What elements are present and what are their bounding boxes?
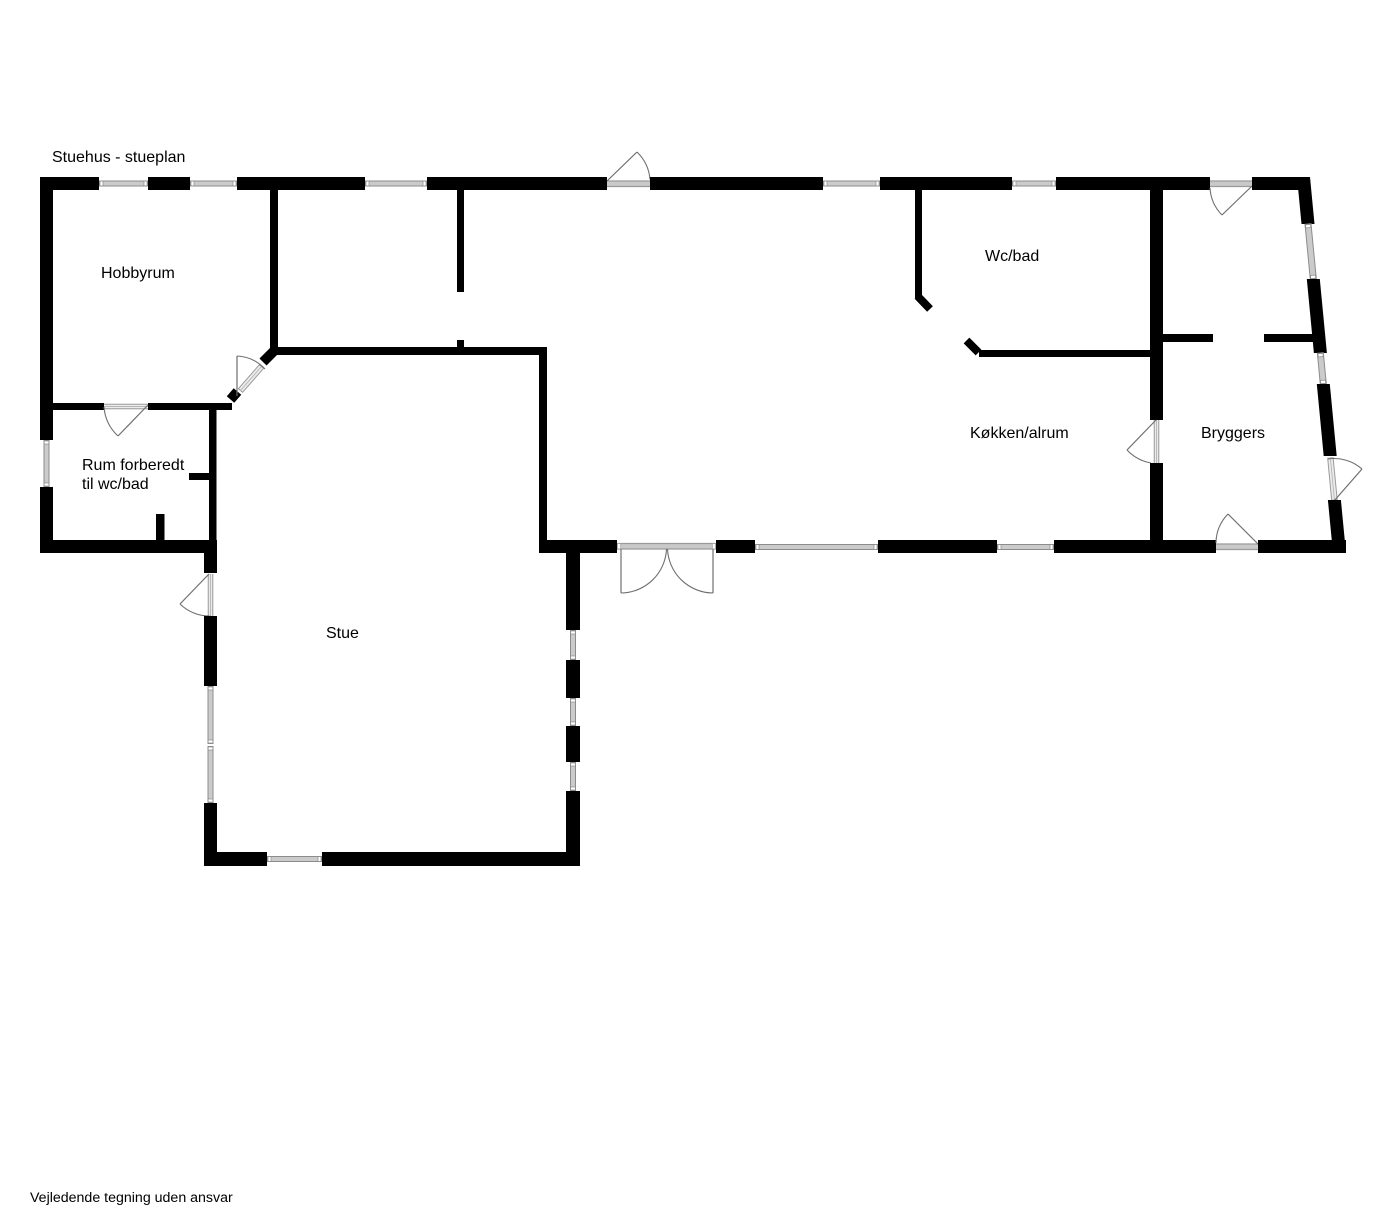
svg-text:Stue: Stue [326, 625, 359, 642]
svg-text:Hobbyrum: Hobbyrum [101, 265, 175, 282]
svg-text:Bryggers: Bryggers [1201, 425, 1265, 442]
svg-text:Køkken/alrum: Køkken/alrum [970, 425, 1069, 442]
svg-text:til wc/bad: til wc/bad [82, 476, 149, 493]
svg-text:Wc/bad: Wc/bad [985, 248, 1039, 265]
svg-text:Stuehus - stueplan: Stuehus - stueplan [52, 149, 185, 166]
svg-text:Vejledende tegning uden ansvar: Vejledende tegning uden ansvar [30, 1190, 233, 1206]
svg-text:Rum forberedt: Rum forberedt [82, 457, 185, 474]
